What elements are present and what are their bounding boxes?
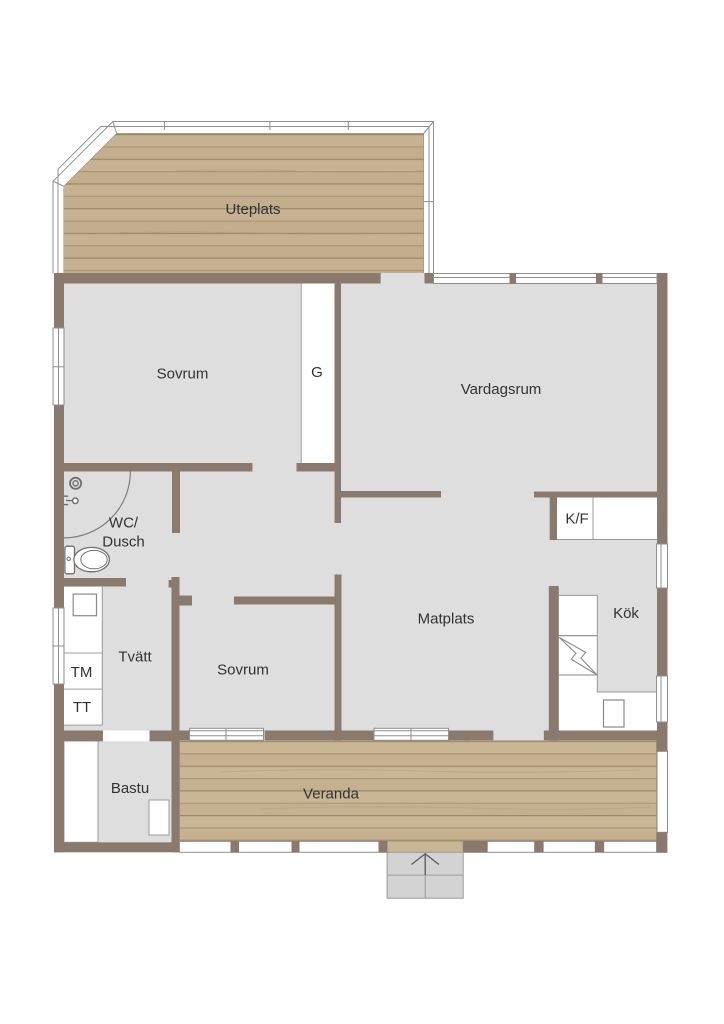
svg-text:Kök: Kök <box>613 605 639 622</box>
svg-text:G: G <box>311 364 323 381</box>
svg-text:WC/: WC/ <box>109 515 139 532</box>
svg-text:Uteplats: Uteplats <box>225 201 280 218</box>
svg-text:TT: TT <box>73 699 91 716</box>
svg-text:Matplats: Matplats <box>418 611 475 628</box>
svg-text:Veranda: Veranda <box>303 786 360 803</box>
svg-text:TM: TM <box>71 664 93 681</box>
svg-text:Tvätt: Tvätt <box>118 649 152 666</box>
svg-text:Bastu: Bastu <box>111 780 149 797</box>
svg-text:Dusch: Dusch <box>102 534 145 551</box>
svg-text:K/F: K/F <box>565 511 588 528</box>
svg-text:Sovrum: Sovrum <box>217 662 269 679</box>
svg-text:Vardagsrum: Vardagsrum <box>461 381 542 398</box>
svg-text:Sovrum: Sovrum <box>157 366 209 383</box>
